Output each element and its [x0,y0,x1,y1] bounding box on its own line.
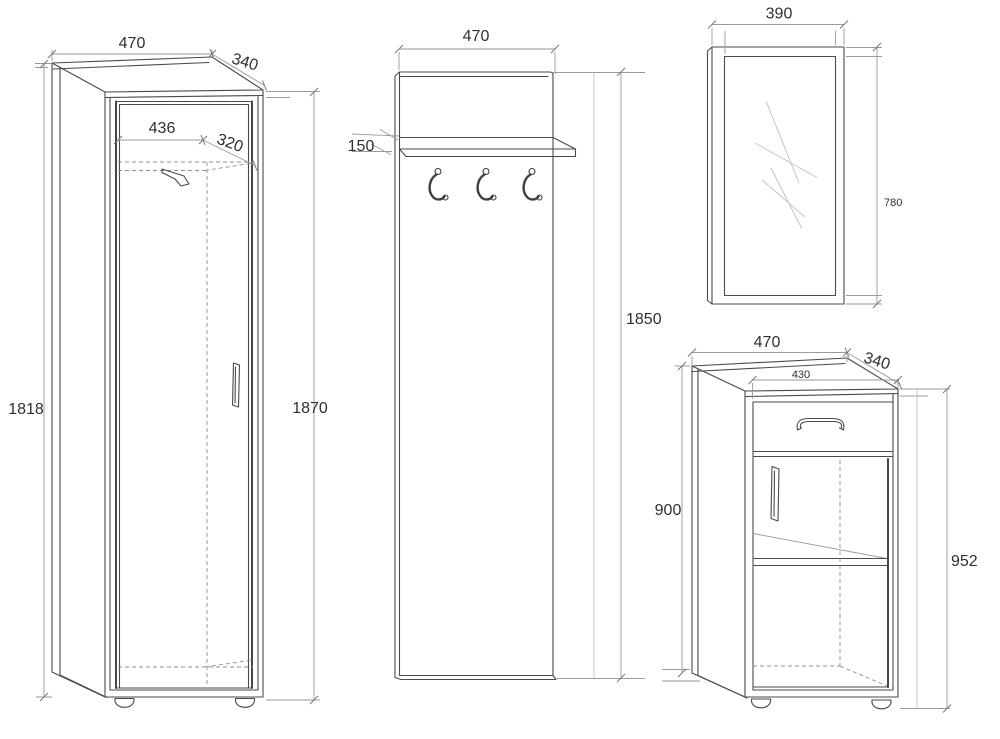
coat-panel-height-label: 1850 [626,311,662,328]
wardrobe-door-handle [233,363,240,407]
drawing-svg: 470 340 436 320 1818 1870 [0,0,1000,739]
mirror-frame-inner [725,57,836,296]
cabinet-height-left-label: 900 [655,502,682,519]
wardrobe-inner-width-label: 436 [149,120,176,137]
wardrobe-foot-right [235,699,254,708]
coat-hook [524,169,542,201]
mirror-frame-outer [712,47,844,304]
mirror-height-label: 780 [884,197,902,209]
coat-hook [478,169,496,201]
mirror-width-label: 390 [766,6,793,23]
wardrobe-height-right-label: 1870 [292,400,328,417]
cabinet-door [753,459,888,687]
cabinet-door-handle [771,467,779,522]
cabinet-foot-right [872,700,891,709]
hallway-furniture-technical-drawing: 470 340 436 320 1818 1870 [0,0,1000,739]
coat-panel-width-label: 470 [463,28,490,45]
wardrobe-foot-left [115,699,134,708]
coat-panel-shelf-depth-label: 150 [348,138,375,155]
wardrobe-hanger-bracket [162,169,189,186]
coat-hook [430,169,448,201]
cabinet-drawing: 470 340 430 900 952 [655,334,978,713]
mirror-glass-marks [755,101,817,229]
cabinet-foot-left [751,699,770,708]
coat-panel-shelf [400,138,576,157]
wardrobe-width-label: 470 [119,35,146,52]
cabinet-inner-width-label: 430 [792,369,810,381]
wardrobe-inner-depth-label: 320 [214,131,245,156]
cabinet-interior-hidden-lines [753,460,887,686]
wardrobe-interior-hidden-lines [118,162,253,685]
cabinet-width-label: 470 [754,334,781,351]
coat-panel-drawing: 470 150 1850 [348,28,662,682]
wardrobe-door [116,102,252,689]
mirror-drawing: 390 780 [708,6,903,309]
cabinet-height-right-label: 952 [951,553,978,570]
wardrobe-drawing: 470 340 436 320 1818 1870 [8,35,328,707]
cabinet-drawer-handle [797,419,844,431]
coat-panel-board [400,72,554,676]
wardrobe-height-left-label: 1818 [8,401,44,418]
cabinet-drawer [753,419,893,457]
cabinet-shelf [753,559,887,566]
